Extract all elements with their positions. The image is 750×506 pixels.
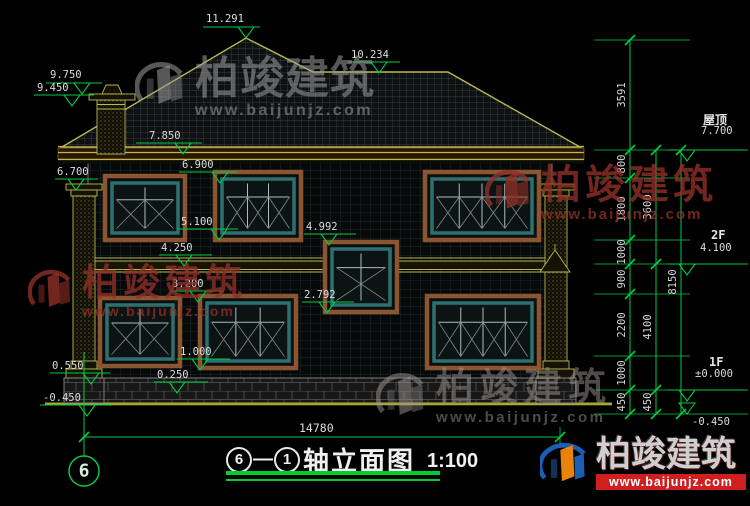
window <box>215 172 301 240</box>
window <box>200 296 296 368</box>
level-value: -0.450 <box>692 417 730 429</box>
window <box>427 296 539 368</box>
dim-label: 4100 <box>642 314 654 339</box>
dim-label: 3591 <box>616 82 628 107</box>
window <box>100 298 180 366</box>
title-dash: — <box>253 448 273 471</box>
title-axis-start: 6 <box>226 447 252 473</box>
elevation-drawing <box>0 0 750 506</box>
title-underline <box>226 471 440 475</box>
level-name: 2F <box>711 228 725 242</box>
elevation-label: 4.250 <box>161 243 193 255</box>
window <box>105 176 185 240</box>
elevation-label: 9.750 <box>50 70 82 82</box>
dim-label: 800 <box>616 155 628 174</box>
elevation-label: 10.234 <box>351 50 389 62</box>
elevation-label: 2.792 <box>304 290 336 302</box>
elevation-label: -0.450 <box>43 393 81 405</box>
overall-width-dim: 14780 <box>299 422 334 435</box>
level-value: 4.100 <box>700 243 732 255</box>
dim-label: 450 <box>642 393 654 412</box>
ground-line <box>45 403 612 406</box>
dim-label: 1800 <box>616 196 628 221</box>
elevation-label: 0.550 <box>52 361 84 373</box>
roof <box>62 38 580 147</box>
dim-label: 8150 <box>667 269 679 294</box>
elevation-label: 6.700 <box>57 167 89 179</box>
eave-cornice <box>58 147 584 164</box>
elevation-label: 4.992 <box>306 222 338 234</box>
dim-label: 1000 <box>616 239 628 264</box>
elevation-label: 5.100 <box>181 217 213 229</box>
elevation-label: 0.250 <box>157 370 189 382</box>
elevation-label: 9.450 <box>37 83 69 95</box>
elevation-label: 1.000 <box>180 347 212 359</box>
window <box>425 172 539 240</box>
level-value: ±0.000 <box>695 369 733 381</box>
level-name: 1F <box>709 355 723 369</box>
elevation-label: 11.291 <box>206 14 244 26</box>
dim-label: 450 <box>616 393 628 412</box>
dim-label: 3600 <box>642 194 654 219</box>
elevation-label: 6.900 <box>182 160 214 172</box>
elevation-label: 3.200 <box>172 279 204 291</box>
title-axis-end: 1 <box>274 447 300 473</box>
title-underline-thin <box>226 479 440 481</box>
dim-label: 900 <box>616 270 628 289</box>
axis-bubble-number: 6 <box>79 461 90 482</box>
dim-label: 2200 <box>616 312 628 337</box>
elevation-label: 7.850 <box>149 131 181 143</box>
title-scale: 1:100 <box>427 450 478 473</box>
level-value: 7.700 <box>701 126 733 138</box>
dim-label: 1000 <box>616 360 628 385</box>
cad-elevation-canvas: 11.291 10.234 9.750 9.450 7.850 6.900 6.… <box>0 0 750 506</box>
